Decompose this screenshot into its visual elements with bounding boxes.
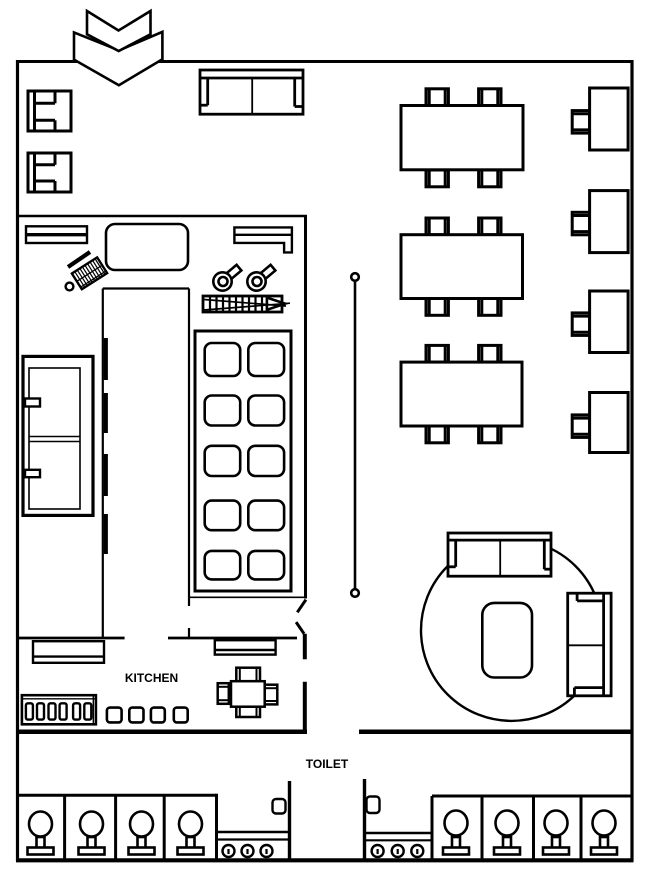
svg-text:TOILET: TOILET xyxy=(306,757,349,771)
svg-text:KITCHEN: KITCHEN xyxy=(125,671,178,685)
